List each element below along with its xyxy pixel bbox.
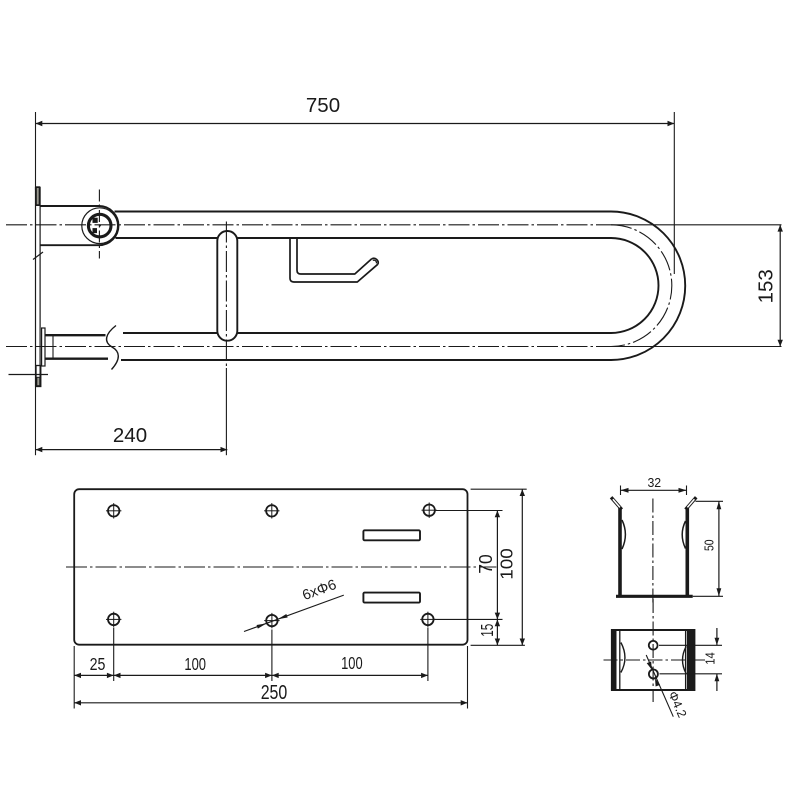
svg-text:50: 50 [702, 540, 717, 552]
svg-text:100: 100 [184, 654, 206, 674]
svg-text:250: 250 [261, 682, 288, 704]
svg-text:100: 100 [341, 653, 363, 673]
svg-text:14: 14 [704, 652, 718, 665]
svg-text:750: 750 [306, 94, 340, 117]
svg-text:100: 100 [497, 548, 517, 580]
svg-text:32: 32 [647, 475, 661, 490]
svg-text:240: 240 [113, 424, 147, 447]
svg-text:25: 25 [90, 654, 106, 674]
svg-text:15: 15 [477, 624, 497, 637]
svg-text:70: 70 [476, 554, 496, 573]
svg-text:153: 153 [755, 269, 778, 303]
